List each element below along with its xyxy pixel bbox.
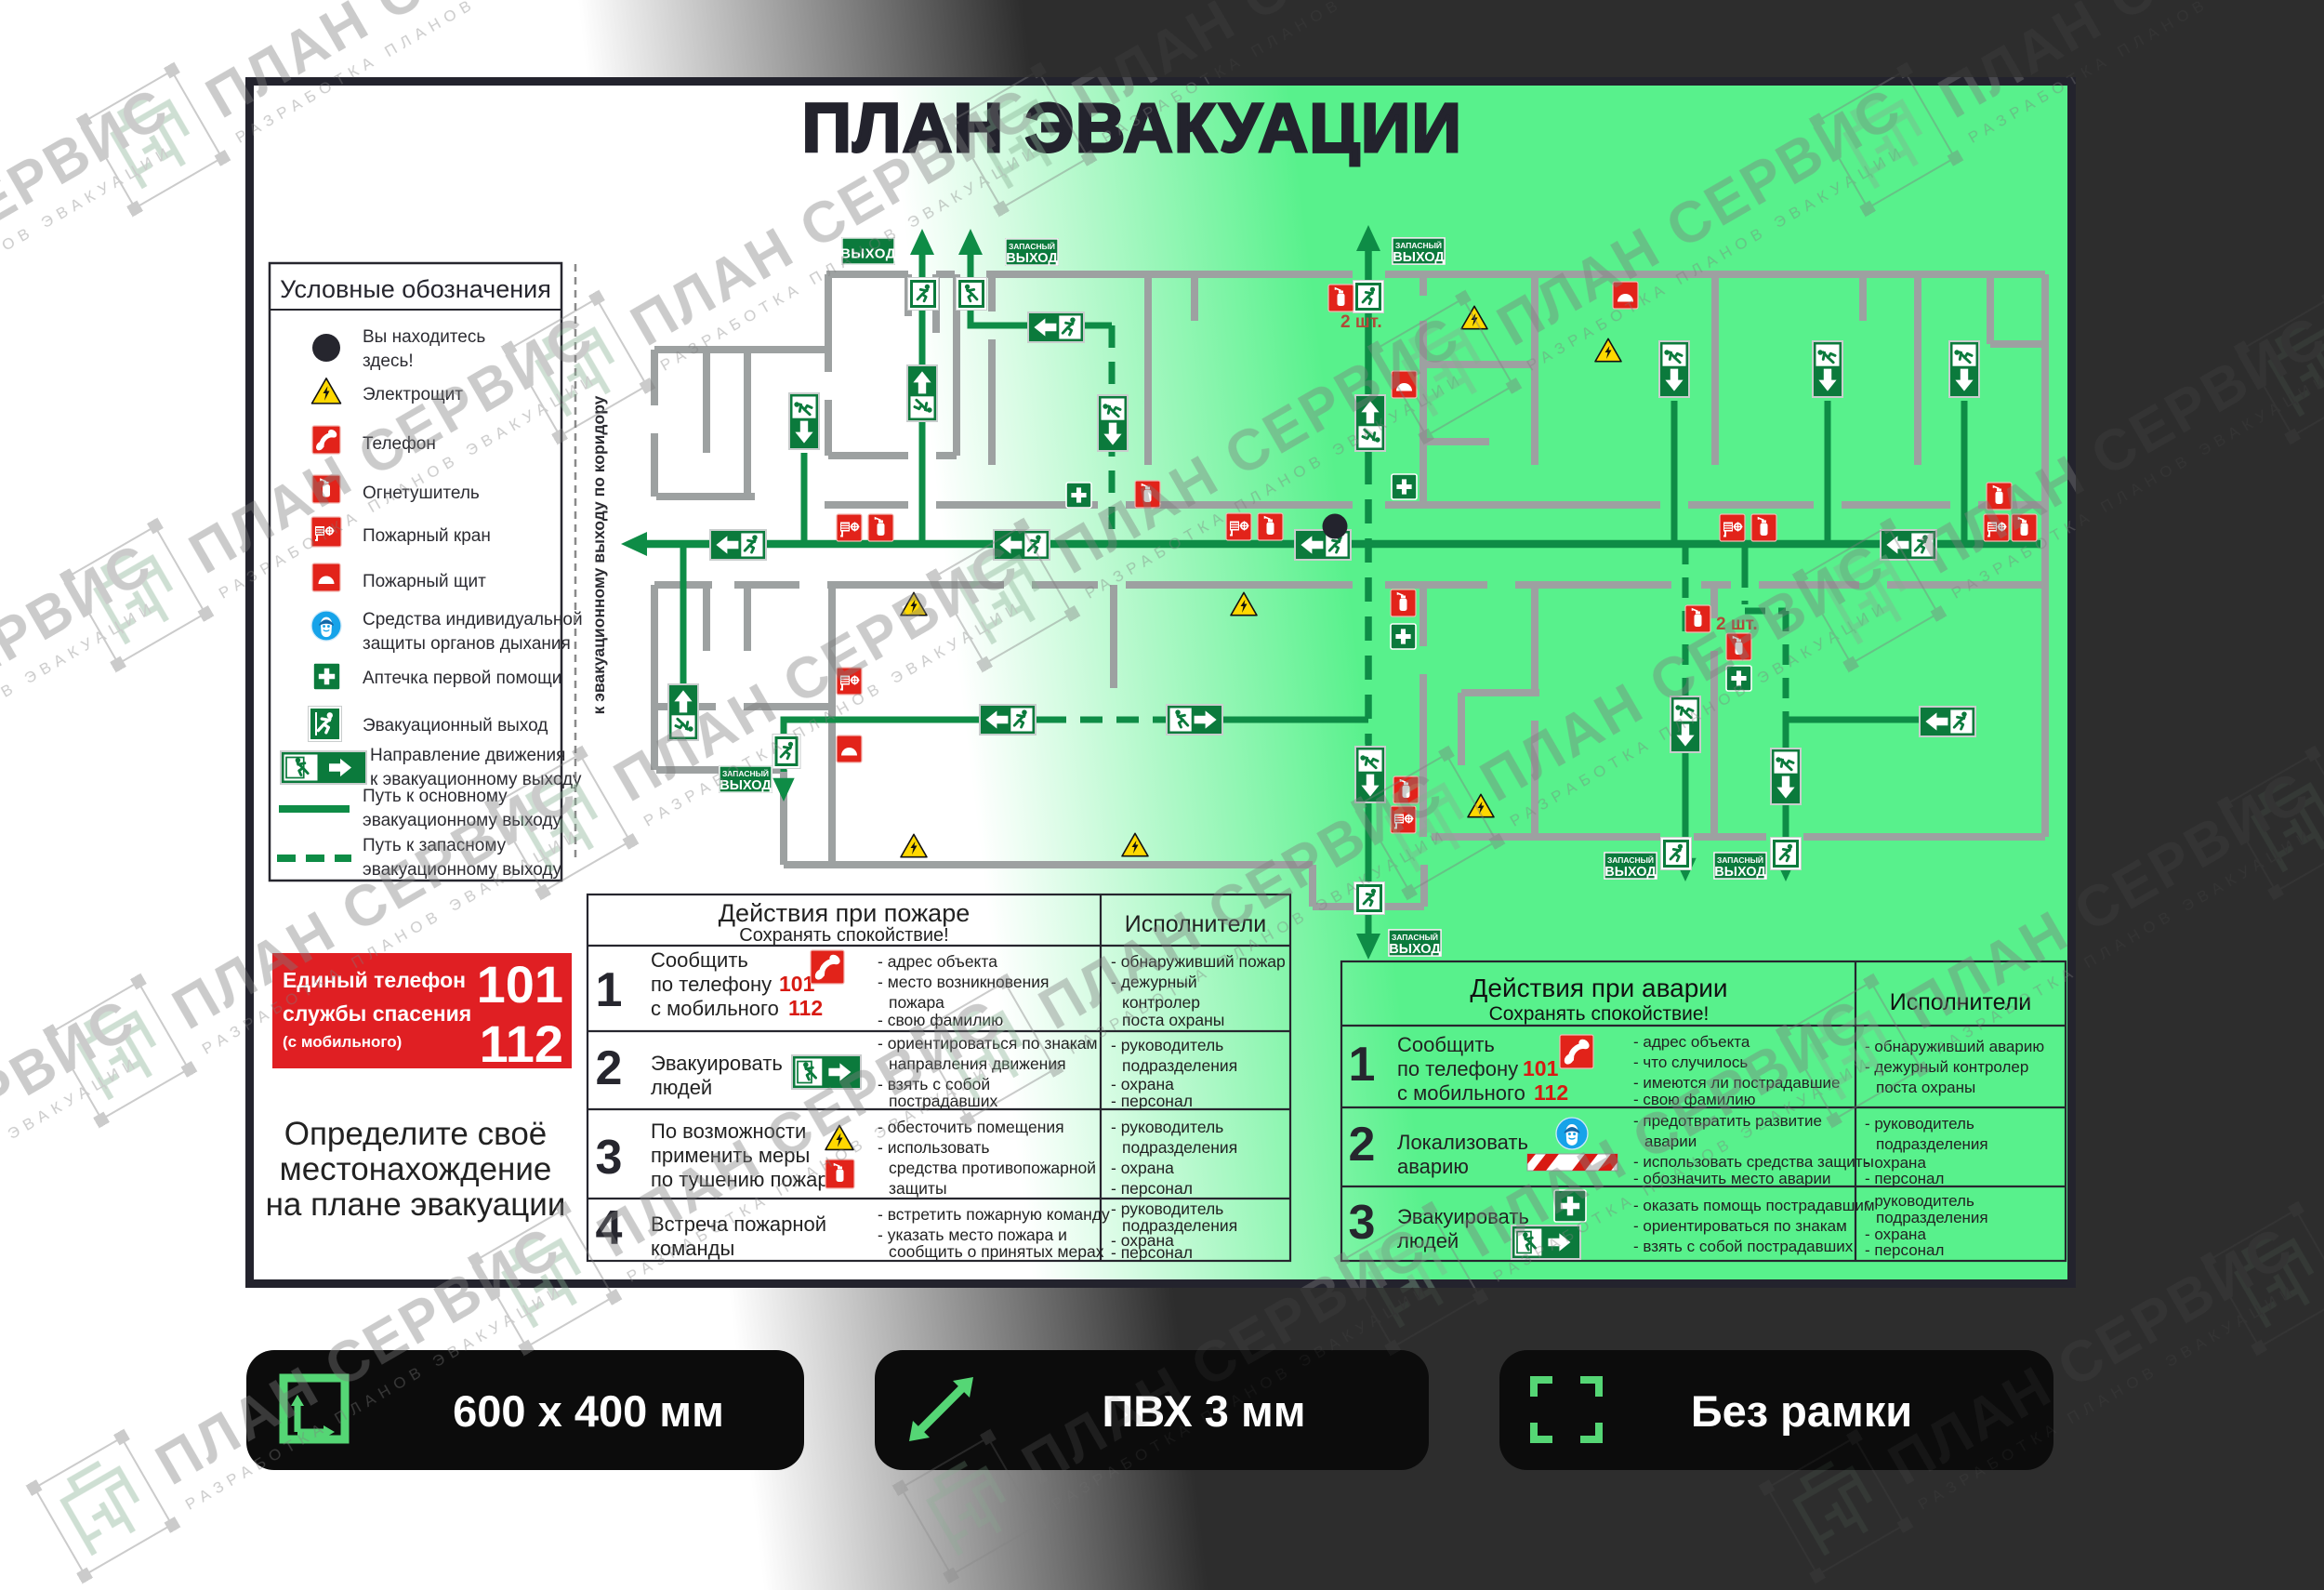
svg-text:средства противопожарной: средства противопожарной — [889, 1159, 1096, 1177]
svg-text:- оказать помощь пострадавшим: - оказать помощь пострадавшим — [1633, 1197, 1875, 1214]
svg-text:Сохранять спокойствие!: Сохранять спокойствие! — [1489, 1003, 1710, 1025]
svg-text:Сохранять спокойствие!: Сохранять спокойствие! — [739, 925, 948, 946]
svg-text:Действия при аварии: Действия при аварии — [1470, 974, 1727, 1002]
svg-text:101: 101 — [1523, 1056, 1559, 1080]
svg-text:- руководитель: - руководитель — [1865, 1115, 1974, 1133]
svg-text:по телефону: по телефону — [1397, 1057, 1518, 1080]
svg-text:защиты органов дыхания: защиты органов дыхания — [363, 634, 571, 654]
svg-text:- охрана: - охрана — [1111, 1159, 1174, 1177]
svg-text:112: 112 — [480, 1014, 563, 1073]
svg-text:112: 112 — [1534, 1080, 1568, 1105]
svg-text:Действия при пожаре: Действия при пожаре — [719, 899, 970, 927]
svg-text:2 шт.: 2 шт. — [1340, 312, 1382, 332]
svg-text:3: 3 — [596, 1131, 623, 1185]
svg-text:защиты: защиты — [889, 1179, 947, 1198]
svg-text:Средства индивидуальной: Средства индивидуальной — [363, 610, 583, 629]
svg-text:- адрес объекта: - адрес объекта — [1633, 1033, 1750, 1051]
svg-text:Сообщить: Сообщить — [651, 948, 748, 972]
svg-text:- персонал: - персонал — [1111, 1243, 1193, 1262]
svg-text:101: 101 — [477, 955, 563, 1014]
svg-text:ЗАПАСНЫЙ: ЗАПАСНЫЙ — [1392, 932, 1438, 942]
svg-text:- ориентироваться по знакам: - ориентироваться по знакам — [1633, 1217, 1847, 1235]
svg-text:с мобильного: с мобильного — [651, 997, 779, 1020]
svg-text:службы спасения: службы спасения — [283, 1001, 471, 1026]
svg-text:ЗАПАСНЫЙ: ЗАПАСНЫЙ — [1717, 855, 1763, 865]
svg-text:- руководитель: - руководитель — [1111, 1036, 1223, 1054]
svg-text:- дежурный контролер: - дежурный контролер — [1865, 1058, 2028, 1076]
svg-text:Аптечка первой помощи: Аптечка первой помощи — [363, 669, 561, 688]
svg-text:- персонал: - персонал — [1865, 1170, 1944, 1187]
svg-text:ВЫХОД: ВЫХОД — [1006, 251, 1058, 266]
svg-text:- руководитель: - руководитель — [1865, 1192, 1974, 1210]
svg-text:местонахождение: местонахождение — [280, 1151, 552, 1187]
svg-text:ЗАПАСНЫЙ: ЗАПАСНЫЙ — [1395, 240, 1442, 250]
svg-text:ЗАПАСНЫЙ: ЗАПАСНЫЙ — [1607, 855, 1654, 865]
svg-text:- взять с собой пострадавших: - взять с собой пострадавших — [1633, 1238, 1854, 1255]
svg-text:Вы находитесь: Вы находитесь — [363, 327, 485, 347]
svg-text:Пожарный кран: Пожарный кран — [363, 526, 491, 546]
svg-text:1: 1 — [596, 963, 623, 1017]
svg-text:600 х 400 мм: 600 х 400 мм — [453, 1386, 724, 1436]
svg-text:подразделения: подразделения — [1122, 1138, 1237, 1157]
svg-text:аварию: аварию — [1397, 1155, 1469, 1178]
svg-text:2: 2 — [596, 1041, 623, 1095]
svg-text:подразделения: подразделения — [1122, 1056, 1237, 1075]
svg-text:- персонал: - персонал — [1111, 1092, 1193, 1110]
svg-text:здесь!: здесь! — [363, 351, 414, 371]
svg-text:- указать место пожара и: - указать место пожара и — [878, 1226, 1067, 1244]
svg-text:с мобильного: с мобильного — [1397, 1081, 1525, 1105]
svg-text:- встретить пожарную команду: - встретить пожарную команду — [878, 1205, 1110, 1224]
svg-text:на плане эвакуации: на плане эвакуации — [266, 1186, 566, 1223]
svg-text:2: 2 — [1349, 1118, 1376, 1172]
svg-text:- использовать: - использовать — [878, 1138, 990, 1157]
svg-text:- персонал: - персонал — [1865, 1241, 1944, 1259]
svg-text:пожара: пожара — [889, 993, 944, 1012]
svg-text:- охрана: - охрана — [1111, 1075, 1174, 1093]
svg-text:ВЫХОД: ВЫХОД — [1393, 250, 1445, 265]
svg-text:подразделения: подразделения — [1876, 1135, 1988, 1153]
svg-text:сообщить о принятых мерах: сообщить о принятых мерах — [889, 1242, 1104, 1261]
svg-text:ВЫХОД: ВЫХОД — [1389, 942, 1441, 957]
svg-text:людей: людей — [651, 1076, 712, 1099]
svg-text:Направление движения: Направление движения — [370, 746, 565, 765]
svg-text:- персонал: - персонал — [1111, 1179, 1193, 1198]
svg-text:- руководитель: - руководитель — [1111, 1118, 1223, 1136]
svg-text:(с мобильного): (с мобильного) — [283, 1033, 402, 1051]
svg-text:ВЫХОД: ВЫХОД — [1714, 865, 1766, 880]
svg-text:- руководитель: - руководитель — [1111, 1199, 1223, 1218]
svg-text:Локализовать: Локализовать — [1397, 1131, 1528, 1154]
svg-text:- место возникновения: - место возникновения — [878, 973, 1050, 991]
svg-text:к эвакуационному выходу по кор: к эвакуационному выходу по коридору — [589, 395, 608, 714]
svg-text:Определите своё: Определите своё — [284, 1116, 548, 1152]
svg-text:по телефону: по телефону — [651, 973, 772, 996]
svg-text:Эвакуационный выход: Эвакуационный выход — [363, 716, 548, 735]
svg-text:Условные обозначения: Условные обозначения — [280, 275, 551, 303]
svg-text:Без рамки: Без рамки — [1691, 1386, 1912, 1436]
svg-text:1: 1 — [1349, 1038, 1376, 1092]
svg-text:подразделения: подразделения — [1876, 1209, 1988, 1226]
svg-text:112: 112 — [788, 996, 823, 1020]
svg-text:Эвакуировать: Эвакуировать — [651, 1052, 783, 1075]
svg-text:ЗАПАСНЫЙ: ЗАПАСНЫЙ — [1009, 241, 1055, 251]
svg-text:101: 101 — [779, 972, 815, 996]
svg-text:ВЫХОД: ВЫХОД — [1604, 865, 1657, 880]
svg-text:Сообщить: Сообщить — [1397, 1033, 1495, 1056]
svg-text:- адрес объекта: - адрес объекта — [878, 952, 997, 971]
svg-text:Пожарный щит: Пожарный щит — [363, 572, 486, 591]
